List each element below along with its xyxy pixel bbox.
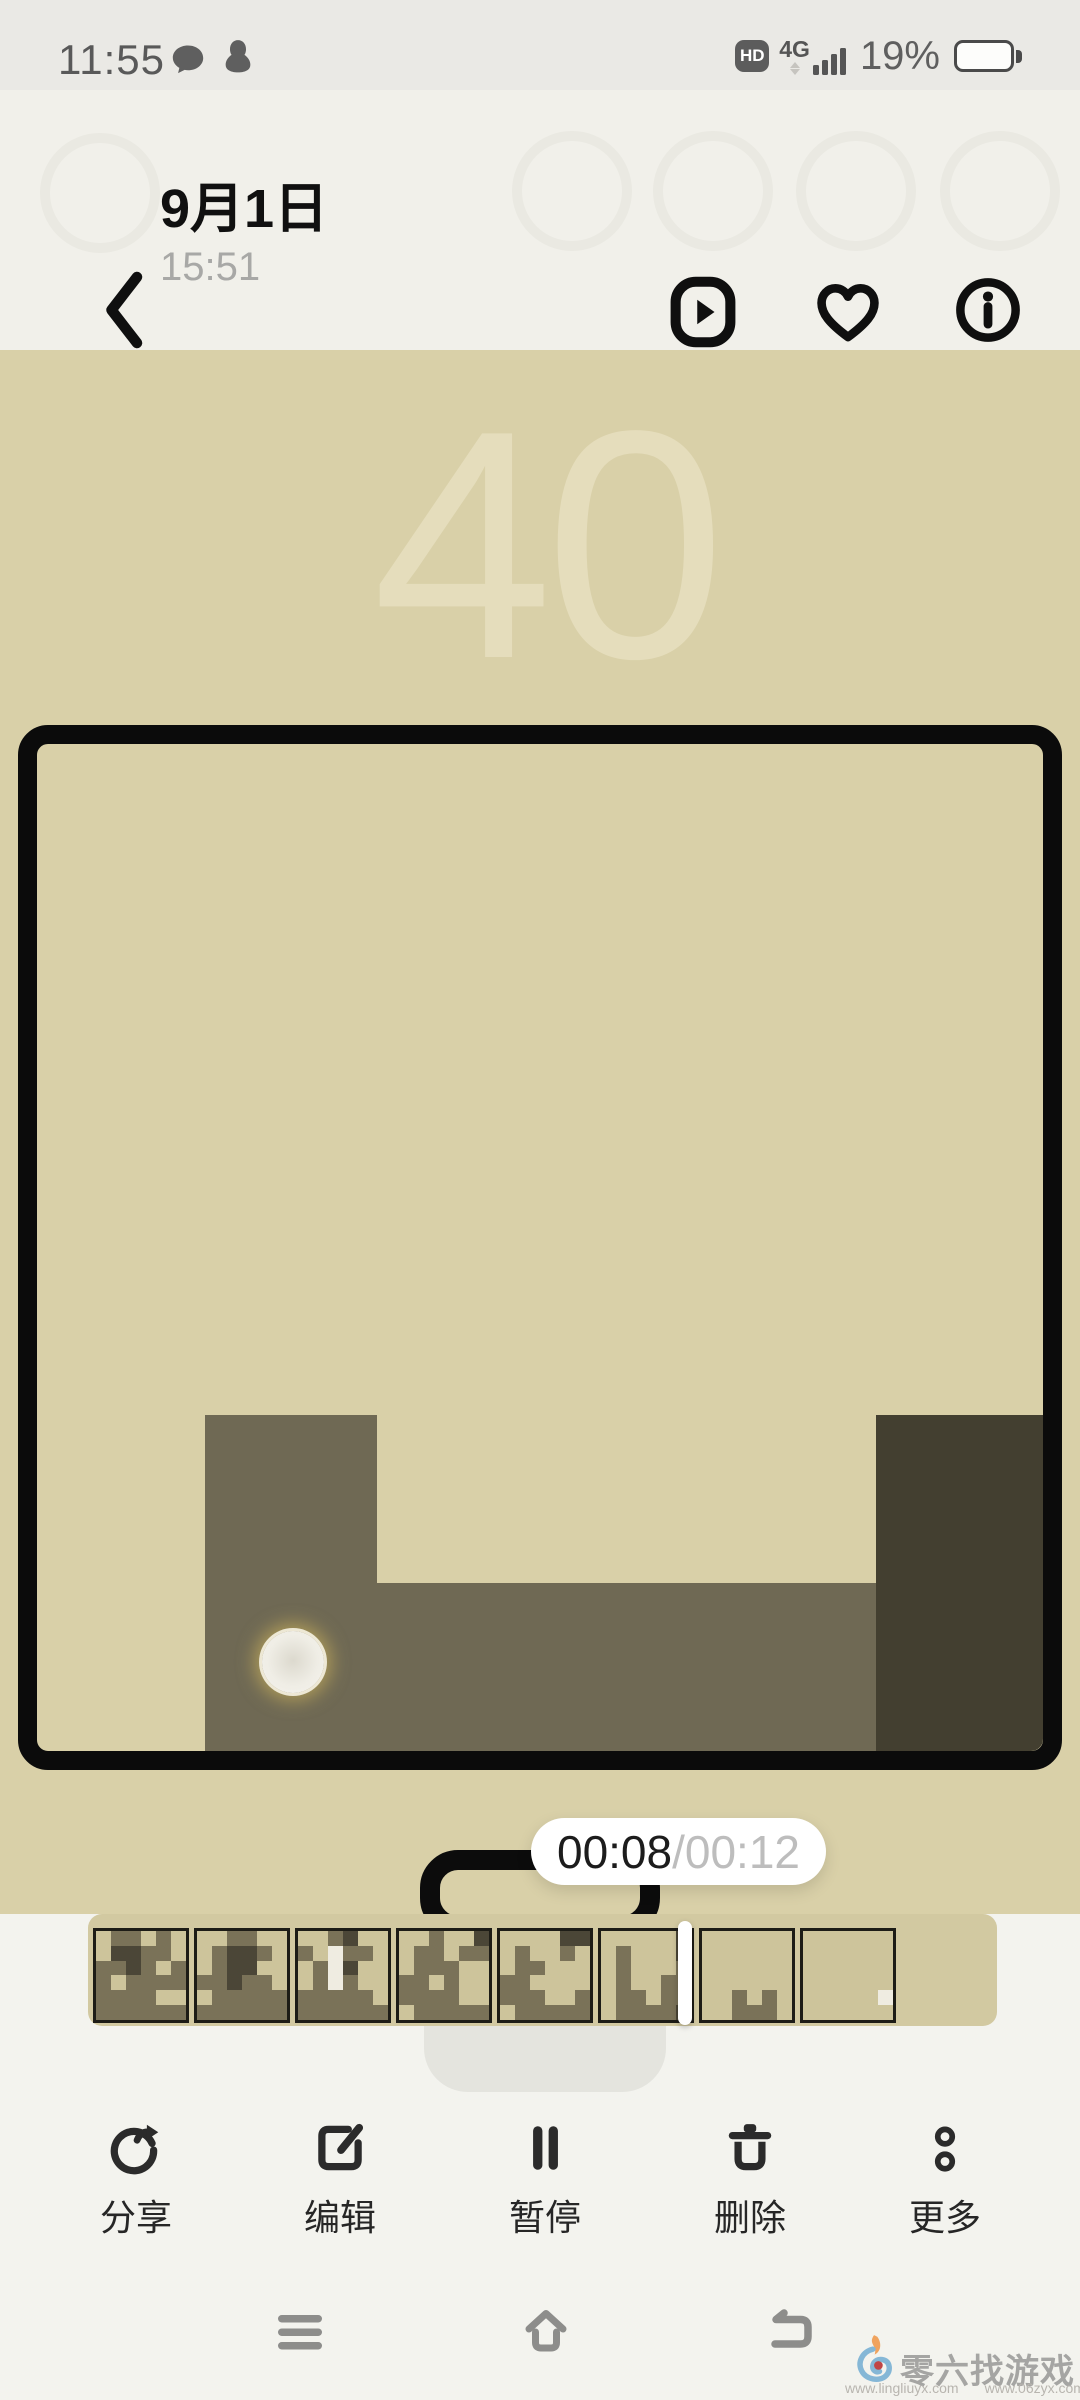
ghost-watermark-circle bbox=[40, 133, 160, 253]
phone-screen: 11:55 HD 4G 19% bbox=[0, 0, 1080, 2400]
filmstrip-thumbnail[interactable] bbox=[699, 1928, 795, 2023]
recent-apps-button[interactable] bbox=[272, 2304, 328, 2360]
home-button[interactable] bbox=[518, 2304, 574, 2360]
playback-timer: 00:08/00:12 bbox=[531, 1818, 826, 1885]
game-score-watermark: 40 bbox=[372, 358, 718, 732]
more-button[interactable]: 更多 bbox=[885, 2119, 1005, 2241]
timer-current: 00:08 bbox=[557, 1825, 672, 1879]
more-label: 更多 bbox=[909, 2189, 981, 2241]
play-video-button[interactable] bbox=[668, 276, 738, 348]
battery-percent-label: 19% bbox=[860, 34, 940, 79]
edit-button[interactable]: 编辑 bbox=[280, 2119, 400, 2241]
hd-badge: HD bbox=[735, 40, 769, 72]
trash-icon bbox=[721, 2119, 779, 2177]
playhead-cursor[interactable] bbox=[678, 1921, 692, 2025]
site-url-left: www.lingliuyx.com bbox=[845, 2380, 959, 2396]
timer-total: 00:12 bbox=[685, 1825, 800, 1879]
signal-bars-icon bbox=[813, 45, 846, 75]
status-bar: 11:55 HD 4G 19% bbox=[0, 0, 1080, 90]
back-arrow-icon bbox=[763, 2304, 819, 2360]
lower-panel: 分享 编辑 暂停 删除 bbox=[0, 1914, 1080, 2400]
favorite-heart-button[interactable] bbox=[814, 280, 884, 352]
filmstrip-thumbnail[interactable] bbox=[93, 1928, 189, 2023]
menu-icon bbox=[272, 2304, 328, 2360]
game-block bbox=[876, 1415, 1043, 1751]
ghost-watermark-circle bbox=[796, 131, 916, 251]
filmstrip-thumbnail[interactable] bbox=[497, 1928, 593, 2023]
share-label: 分享 bbox=[100, 2189, 172, 2241]
edit-icon bbox=[311, 2119, 369, 2177]
title-block: 9月1日 15:51 bbox=[160, 180, 328, 290]
share-button[interactable]: 分享 bbox=[76, 2119, 196, 2241]
ghost-watermark-circle bbox=[940, 131, 1060, 251]
info-button[interactable] bbox=[954, 276, 1024, 348]
game-ball bbox=[262, 1631, 324, 1693]
game-block bbox=[205, 1415, 377, 1751]
game-board bbox=[18, 725, 1062, 1770]
pause-label: 暂停 bbox=[509, 2189, 581, 2241]
pause-button[interactable]: 暂停 bbox=[485, 2119, 605, 2241]
network-indicator: 4G bbox=[779, 38, 846, 75]
network-type-label: 4G bbox=[779, 38, 810, 61]
header: 9月1日 15:51 bbox=[0, 90, 1080, 350]
back-nav-button[interactable] bbox=[763, 2304, 819, 2360]
delete-button[interactable]: 删除 bbox=[690, 2119, 810, 2241]
delete-label: 删除 bbox=[714, 2189, 786, 2241]
site-url-right: www.06zyx.com bbox=[985, 2380, 1080, 2396]
game-board-interior bbox=[37, 744, 1043, 1751]
timer-separator: / bbox=[672, 1825, 685, 1879]
filmstrip-thumbnail[interactable] bbox=[396, 1928, 492, 2023]
message-notification-icon bbox=[170, 42, 206, 81]
page-subtitle: 15:51 bbox=[160, 245, 328, 290]
pause-icon bbox=[516, 2119, 574, 2177]
home-icon bbox=[518, 2304, 574, 2360]
video-frame[interactable]: 40 00:08/00:12 bbox=[0, 350, 1080, 1914]
game-block bbox=[377, 1583, 876, 1751]
ghost-watermark-circle bbox=[653, 131, 773, 251]
filmstrip-thumbnail[interactable] bbox=[194, 1928, 290, 2023]
battery-icon bbox=[954, 40, 1022, 72]
status-indicators: HD 4G 19% bbox=[735, 34, 1022, 78]
filmstrip-thumbnail[interactable] bbox=[800, 1928, 896, 2023]
share-icon bbox=[107, 2119, 165, 2177]
more-dots-icon bbox=[916, 2119, 974, 2177]
qq-penguin-icon bbox=[221, 38, 255, 81]
back-button[interactable] bbox=[92, 265, 158, 355]
clock: 11:55 bbox=[58, 36, 165, 84]
filmstrip-thumbnail[interactable] bbox=[295, 1928, 391, 2023]
site-urls: www.lingliuyx.com www.06zyx.com bbox=[845, 2380, 1080, 2396]
edit-label: 编辑 bbox=[304, 2189, 376, 2241]
ghost-watermark-circle bbox=[512, 131, 632, 251]
page-title: 9月1日 bbox=[160, 180, 328, 239]
data-activity-arrows-icon bbox=[790, 62, 800, 75]
